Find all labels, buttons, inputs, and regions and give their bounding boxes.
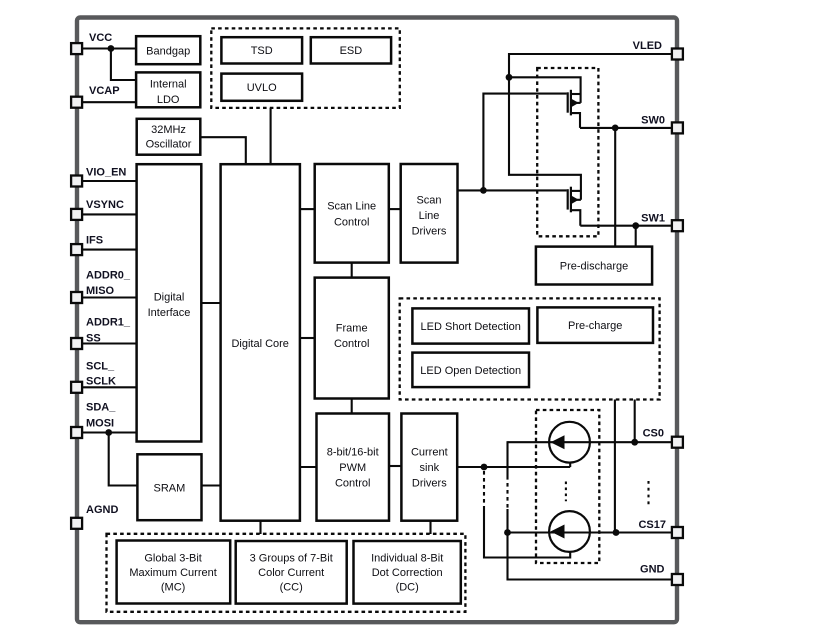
svg-text:Internal: Internal <box>150 79 187 91</box>
svg-text:(CC): (CC) <box>280 582 303 594</box>
svg-text:SCL_: SCL_ <box>86 361 115 373</box>
svg-text:LED Short Detection: LED Short Detection <box>421 321 521 333</box>
svg-text:PWM: PWM <box>339 462 366 474</box>
svg-text:Control: Control <box>334 338 369 350</box>
svg-text:CS17: CS17 <box>638 519 666 531</box>
svg-text:Line: Line <box>419 210 440 222</box>
svg-text:Pre-charge: Pre-charge <box>568 320 622 332</box>
svg-text:Pre-discharge: Pre-discharge <box>560 261 628 273</box>
svg-text:VCC: VCC <box>89 32 112 44</box>
svg-text:Individual 8-Bit: Individual 8-Bit <box>371 553 443 565</box>
svg-text:Scan Line: Scan Line <box>327 201 376 213</box>
svg-text:Drivers: Drivers <box>412 226 447 238</box>
svg-text:32MHz: 32MHz <box>151 124 186 136</box>
svg-text:(MC): (MC) <box>161 582 185 594</box>
svg-text:Drivers: Drivers <box>412 478 447 490</box>
svg-text:VCAP: VCAP <box>89 85 120 97</box>
svg-text:Interface: Interface <box>148 307 191 319</box>
svg-text:Digital: Digital <box>154 291 185 303</box>
svg-text:TSD: TSD <box>251 45 273 57</box>
svg-text:GND: GND <box>640 564 665 576</box>
svg-text:Global 3-Bit: Global 3-Bit <box>144 553 201 565</box>
svg-text:IFS: IFS <box>86 234 103 246</box>
svg-text:ADDR1_: ADDR1_ <box>86 317 131 329</box>
svg-text:CS0: CS0 <box>643 428 664 440</box>
svg-text:Oscillator: Oscillator <box>146 139 192 151</box>
svg-text:LDO: LDO <box>157 94 180 106</box>
svg-text:sink: sink <box>420 462 440 474</box>
svg-text:MOSI: MOSI <box>86 417 114 429</box>
svg-text:LED Open Detection: LED Open Detection <box>420 365 521 377</box>
svg-text:VSYNC: VSYNC <box>86 199 124 211</box>
svg-text:VLED: VLED <box>633 40 662 52</box>
svg-text:SCLK: SCLK <box>86 376 116 388</box>
svg-text:Frame: Frame <box>336 323 368 335</box>
svg-text:SRAM: SRAM <box>154 482 186 494</box>
svg-text:Control: Control <box>334 217 369 229</box>
svg-text:Scan: Scan <box>416 195 441 207</box>
svg-text:SW0: SW0 <box>641 115 665 127</box>
svg-text:UVLO: UVLO <box>247 82 277 94</box>
svg-text:SW1: SW1 <box>641 213 665 225</box>
svg-text:Color Current: Color Current <box>258 567 324 579</box>
svg-text:Control: Control <box>335 478 370 490</box>
svg-text:Dot Correction: Dot Correction <box>372 567 443 579</box>
svg-text:Maximum Current: Maximum Current <box>129 567 216 579</box>
svg-text:ADDR0_: ADDR0_ <box>86 269 131 281</box>
svg-text:VIO_EN: VIO_EN <box>86 166 126 178</box>
svg-text:MISO: MISO <box>86 285 115 297</box>
svg-text:Bandgap: Bandgap <box>146 45 190 57</box>
svg-text:(DC): (DC) <box>396 582 419 594</box>
svg-text:AGND: AGND <box>86 504 118 516</box>
svg-text:8-bit/16-bit: 8-bit/16-bit <box>327 447 379 459</box>
svg-text:ESD: ESD <box>340 45 363 57</box>
svg-text:3 Groups of 7-Bit: 3 Groups of 7-Bit <box>250 553 333 565</box>
svg-text:Current: Current <box>411 447 448 459</box>
svg-text:Digital Core: Digital Core <box>231 338 288 350</box>
svg-text:SDA_: SDA_ <box>86 402 116 414</box>
